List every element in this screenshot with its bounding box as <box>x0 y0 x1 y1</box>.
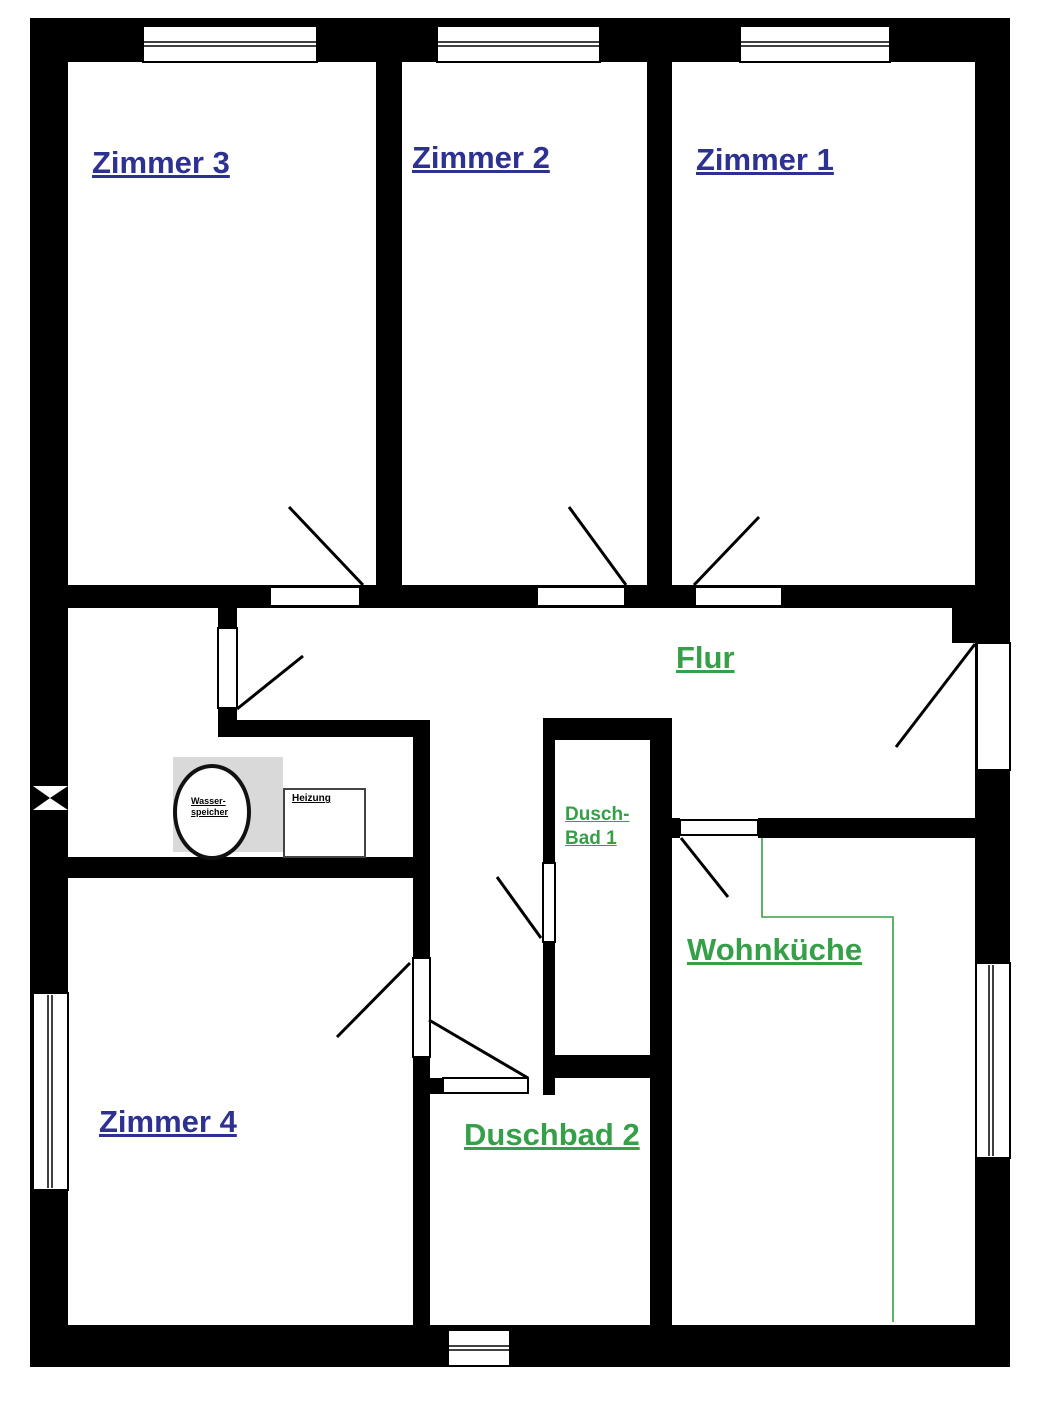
label-wohnkueche: Wohnküche <box>687 933 862 967</box>
door-swing-wohnkueche <box>681 838 728 897</box>
window-zimmer2 <box>437 26 600 62</box>
wall-zimmer3-zimmer2 <box>376 62 402 608</box>
door-swing-zimmer1 <box>694 517 759 585</box>
wall-rooms-flur <box>68 585 975 608</box>
door-utility-niche <box>218 628 237 708</box>
label-wasserspeicher-line1: Wasser- <box>191 796 226 806</box>
label-zimmer1: Zimmer 1 <box>696 143 834 177</box>
door-zimmer3 <box>270 587 360 606</box>
wall-flur-bottom <box>218 720 430 737</box>
door-entrance <box>977 643 1010 770</box>
door-duschbad1 <box>543 863 555 942</box>
wall-duschbad2-door-stub <box>428 1078 443 1094</box>
door-swing-zimmer4 <box>337 963 410 1037</box>
door-wohnkueche <box>680 820 758 835</box>
wall-duschbad1-left-upper <box>543 718 555 865</box>
window-zimmer3 <box>143 26 317 62</box>
label-duschbad1-line2: Bad 1 <box>565 828 617 849</box>
label-zimmer4: Zimmer 4 <box>99 1105 237 1139</box>
wall-corridor-left-lower <box>413 1055 430 1325</box>
window-zimmer4 <box>33 993 68 1190</box>
window-duschbad2 <box>448 1330 510 1366</box>
door-swing-zimmer2 <box>569 507 626 585</box>
floorplan: Zimmer 3 Zimmer 2 Zimmer 1 Flur Dusch- B… <box>0 0 1038 1427</box>
door-swing-entrance <box>896 644 975 747</box>
label-duschbad1-line1: Dusch- <box>565 804 629 825</box>
label-heizung: Heizung <box>292 793 331 804</box>
wall-outer-bottom <box>30 1325 1010 1367</box>
label-wasserspeicher: Wasser- speicher <box>189 795 235 819</box>
wall-corridor-left-upper <box>413 720 430 960</box>
label-zimmer3: Zimmer 3 <box>92 146 230 180</box>
door-swing-utility-niche <box>237 656 303 709</box>
floorplan-svg <box>0 0 1038 1427</box>
wall-duschbad1-right <box>650 718 672 1325</box>
door-duschbad2 <box>443 1078 528 1093</box>
window-wohnkueche <box>976 963 1010 1158</box>
label-duschbad1: Dusch- Bad 1 <box>565 803 635 851</box>
label-duschbad2: Duschbad 2 <box>464 1118 640 1152</box>
door-zimmer4 <box>413 958 430 1057</box>
wall-flur-step-right <box>952 608 975 643</box>
label-wasserspeicher-line2: speicher <box>191 807 228 817</box>
window-zimmer1 <box>740 26 890 62</box>
wall-zimmer2-zimmer1 <box>647 62 672 608</box>
wall-duschbad1-bottom <box>543 1055 672 1078</box>
wall-utility-bottom <box>68 857 430 878</box>
label-flur: Flur <box>676 641 735 675</box>
wall-wohnkueche-top-right <box>758 818 975 838</box>
door-zimmer2 <box>537 587 625 606</box>
door-zimmer1 <box>695 587 782 606</box>
wall-wohnkueche-top-left <box>672 818 680 838</box>
door-swing-duschbad2 <box>429 1020 528 1078</box>
label-zimmer2: Zimmer 2 <box>412 141 550 175</box>
door-swing-duschbad1 <box>497 877 541 938</box>
kitchen-area-outline <box>762 838 893 1322</box>
door-swing-zimmer3 <box>289 507 363 585</box>
